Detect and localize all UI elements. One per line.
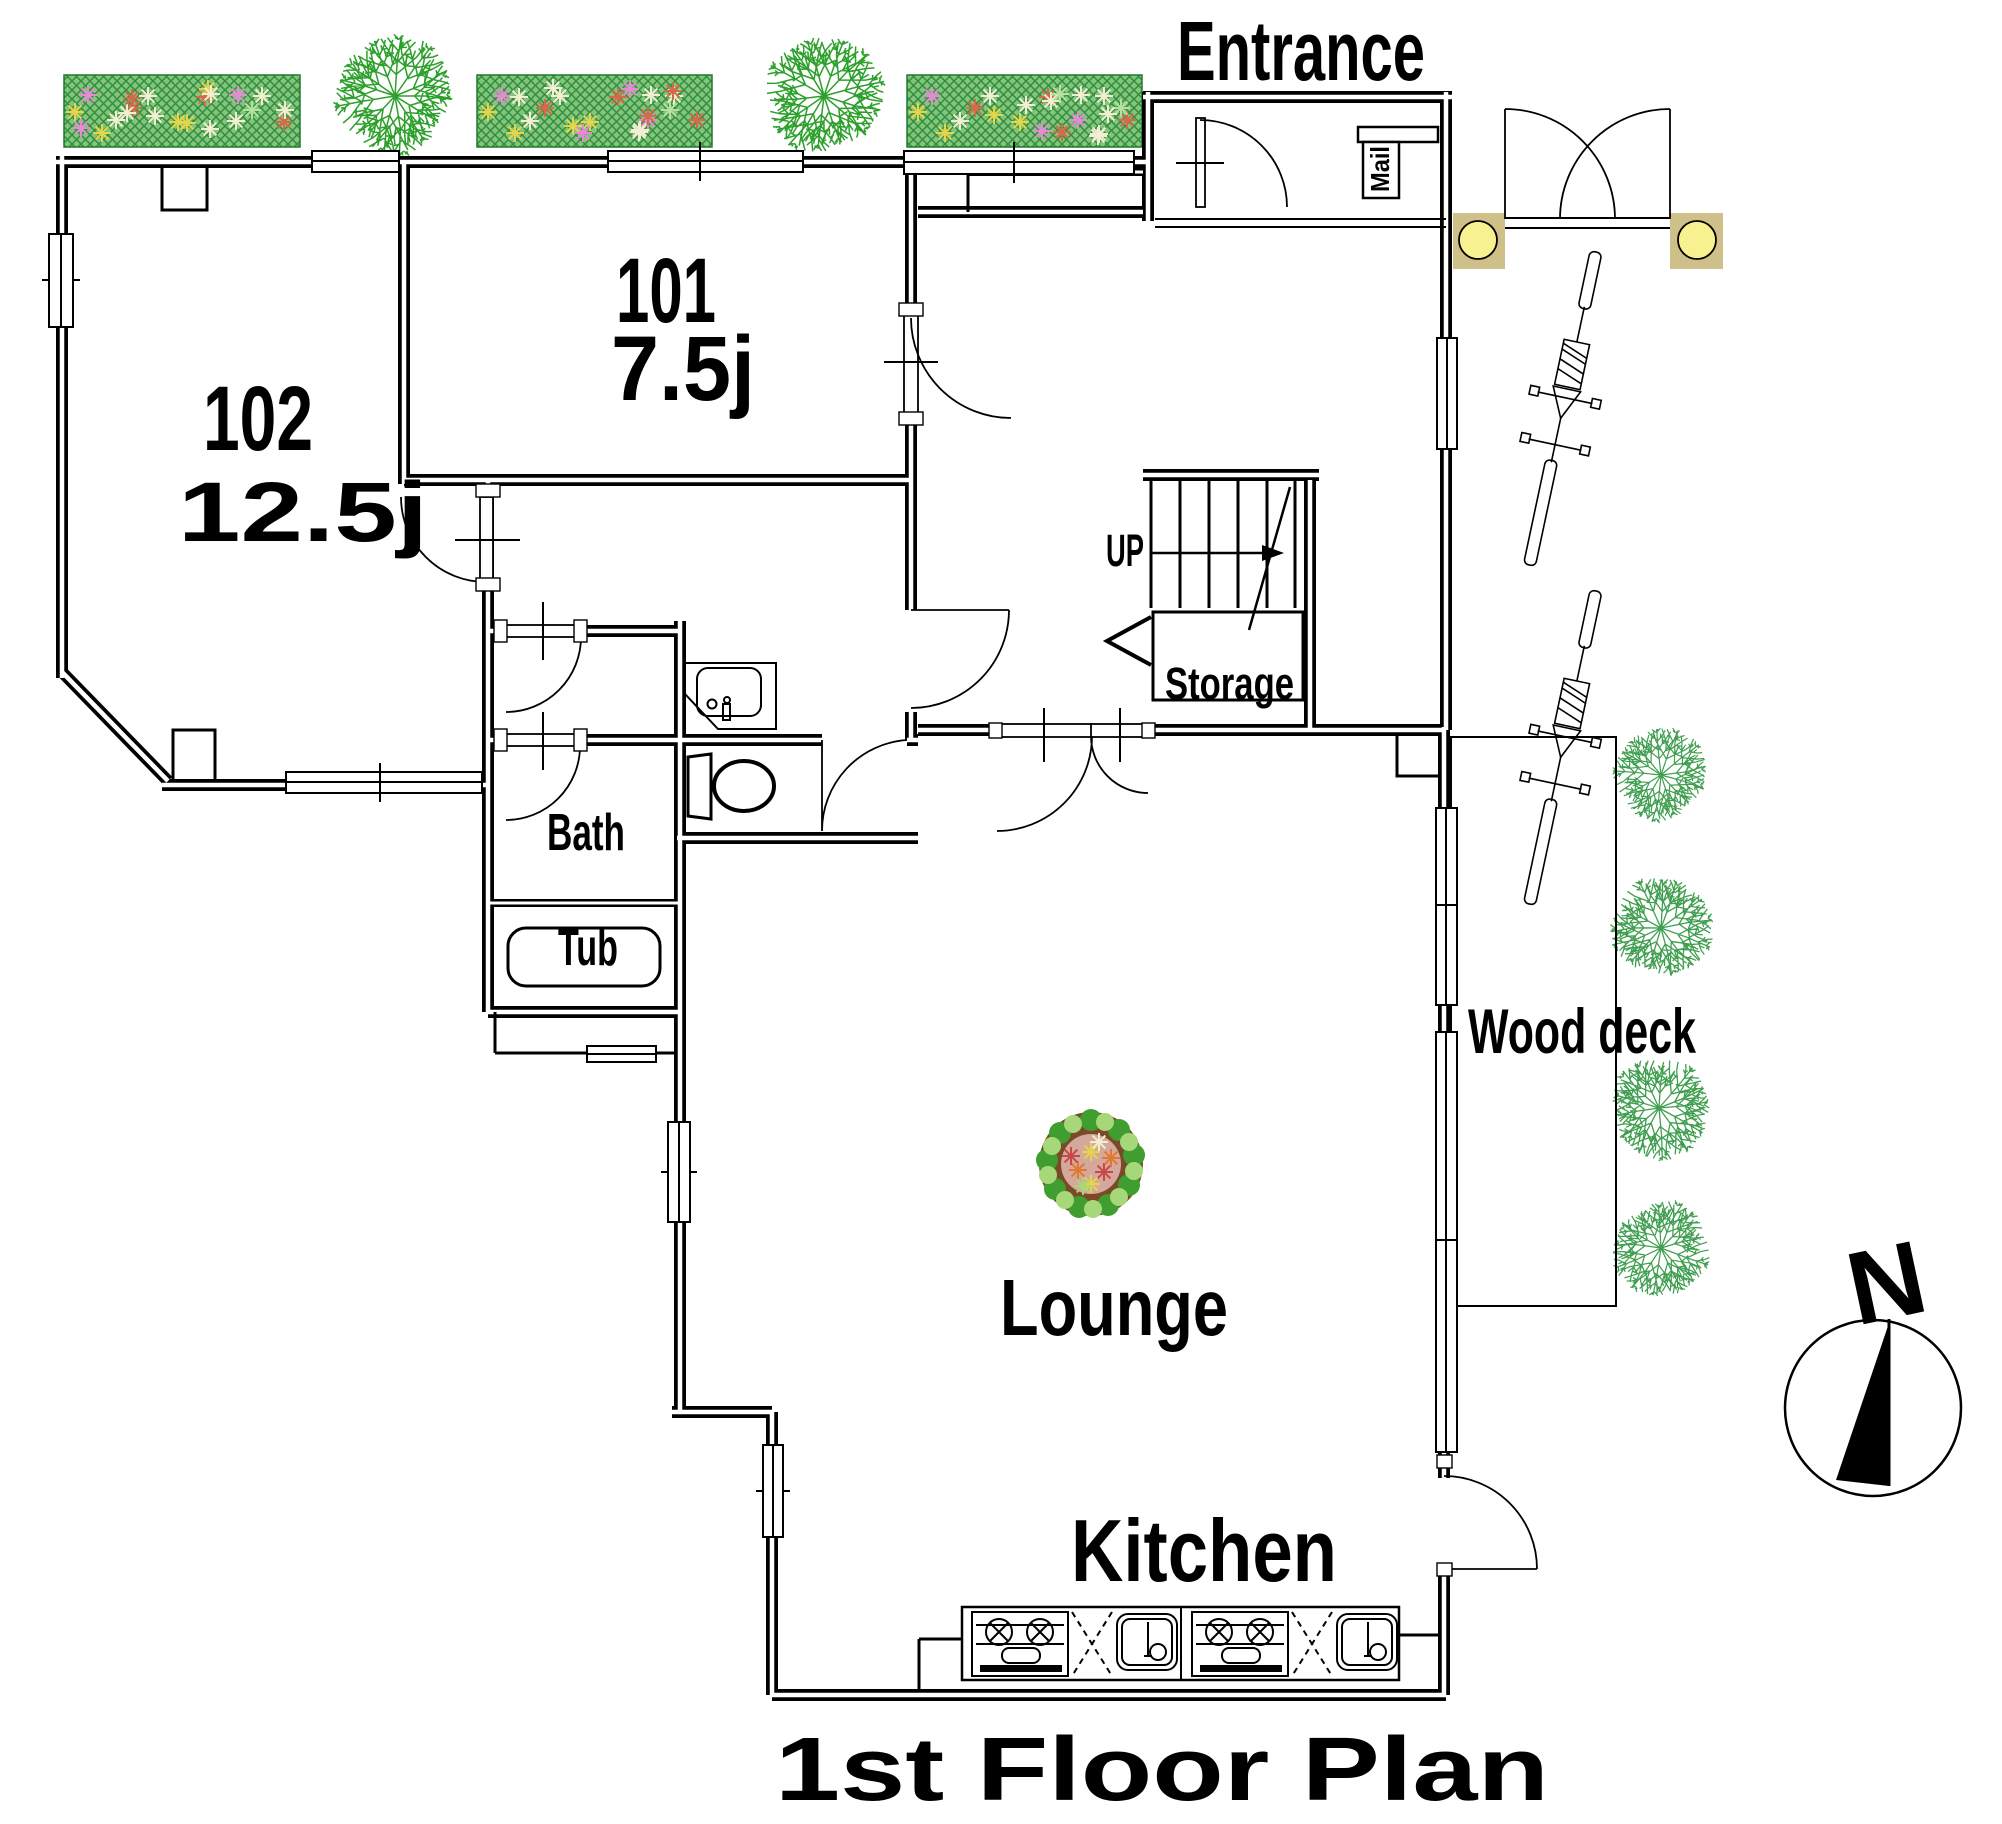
svg-text:7.5j: 7.5j (611, 318, 755, 420)
svg-text:UP: UP (1106, 525, 1144, 576)
svg-text:Wood deck: Wood deck (1468, 997, 1697, 1067)
svg-text:Bath: Bath (547, 804, 625, 862)
svg-text:Entrance: Entrance (1177, 4, 1425, 98)
svg-text:1st Floor Plan: 1st Floor Plan (775, 1720, 1549, 1820)
svg-text:12.5j: 12.5j (178, 465, 428, 559)
svg-text:Kitchen: Kitchen (1071, 1501, 1337, 1600)
svg-text:Mail: Mail (1365, 146, 1395, 192)
svg-text:Tub: Tub (558, 919, 618, 977)
svg-text:Lounge: Lounge (1000, 1263, 1228, 1352)
svg-text:Storage: Storage (1165, 658, 1294, 709)
svg-text:102: 102 (203, 368, 313, 470)
